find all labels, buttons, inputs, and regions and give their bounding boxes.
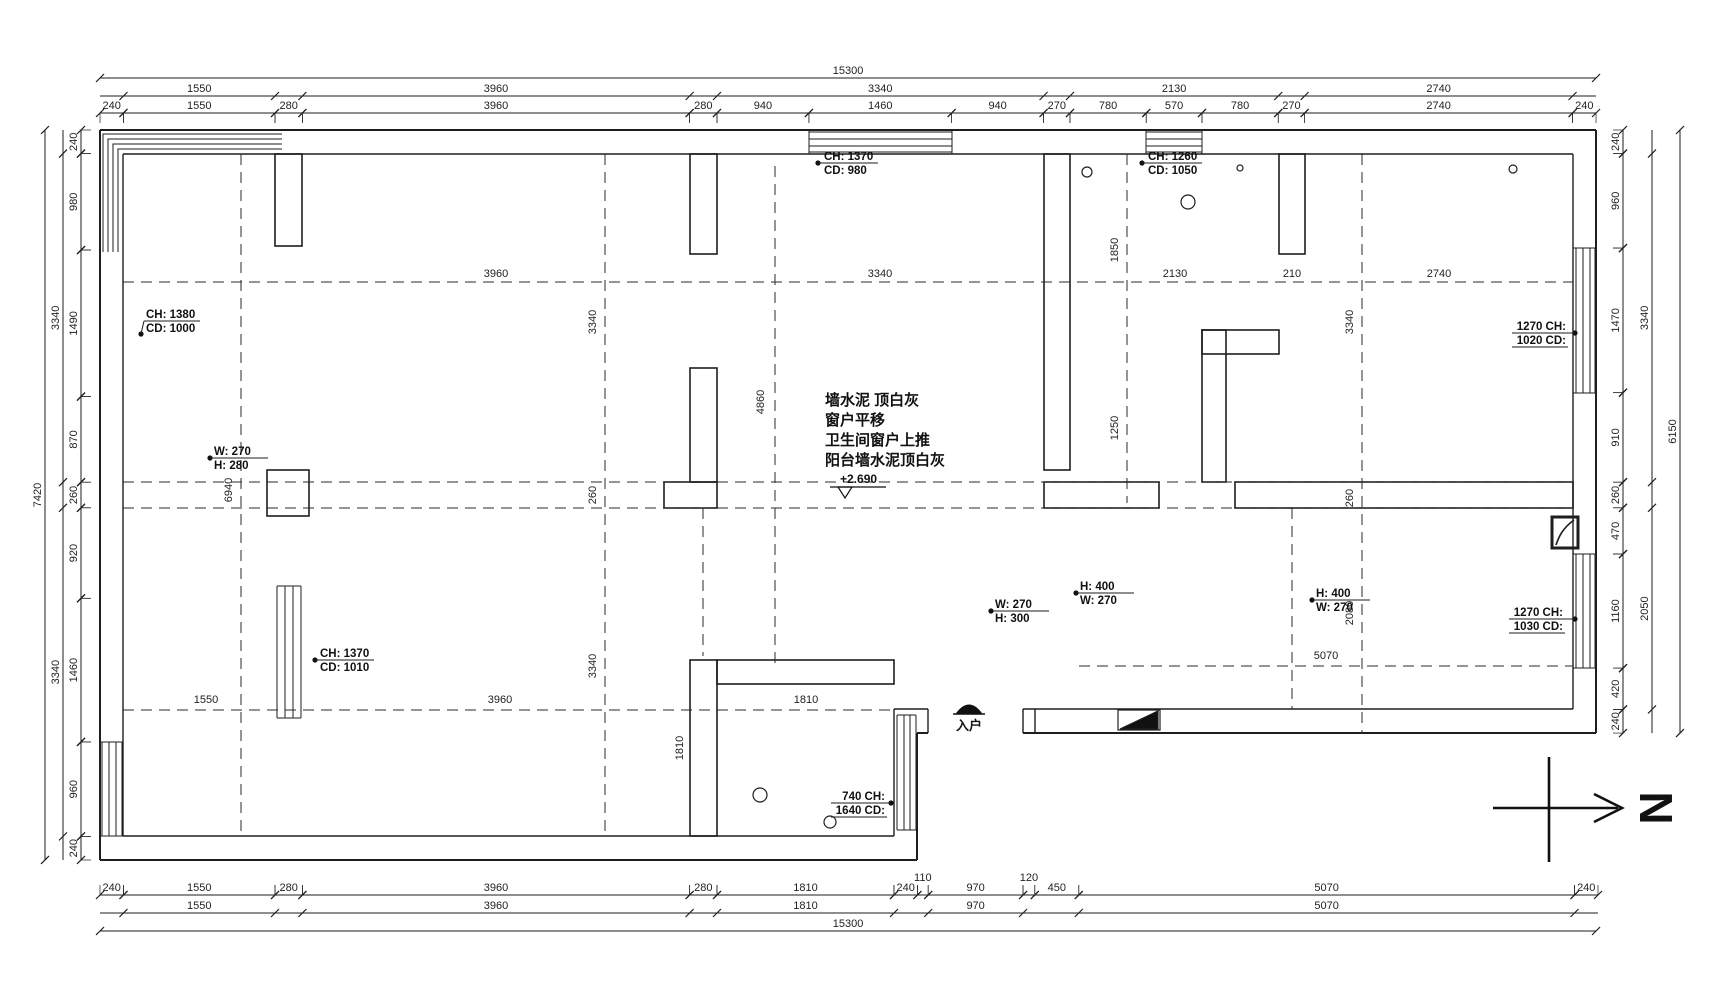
note-line: 卫生间窗户上推: [825, 431, 930, 449]
svg-text:3340: 3340: [50, 660, 62, 684]
interior-dim: 2130: [1163, 268, 1187, 280]
svg-text:7420: 7420: [32, 483, 44, 507]
interior-dimensions: 3960334021302102740507015503960181069403…: [194, 238, 1451, 760]
interior-dim: 3960: [488, 694, 512, 706]
opening-label: 1270 CH:1020 CD:: [1512, 321, 1578, 347]
svg-text:970: 970: [966, 882, 984, 894]
svg-text:15300: 15300: [833, 918, 864, 930]
svg-text:1160: 1160: [1610, 599, 1622, 623]
svg-text:1270 CH:: 1270 CH:: [1514, 607, 1563, 619]
interior-dim: 1550: [194, 694, 218, 706]
interior-dim: 3340: [1344, 310, 1356, 334]
interior-dim: 1250: [1109, 416, 1121, 440]
svg-text:1020 CD:: 1020 CD:: [1517, 335, 1566, 347]
svg-text:980: 980: [68, 193, 80, 211]
svg-text:240: 240: [1610, 133, 1622, 151]
svg-text:240: 240: [1575, 100, 1593, 112]
svg-text:260: 260: [68, 486, 80, 504]
svg-text:W: 270: W: 270: [214, 446, 251, 458]
interior-dim: 2740: [1427, 268, 1451, 280]
svg-text:1490: 1490: [68, 311, 80, 335]
opening-label: 740 CH:1640 CD:: [831, 791, 894, 817]
svg-text:W: 270: W: 270: [1316, 602, 1353, 614]
svg-text:1810: 1810: [793, 882, 817, 894]
svg-text:3340: 3340: [868, 83, 892, 95]
svg-text:CH: 1260: CH: 1260: [1148, 151, 1197, 163]
svg-text:2740: 2740: [1426, 83, 1450, 95]
interior-dim: 3340: [587, 310, 599, 334]
svg-text:1470: 1470: [1610, 308, 1622, 332]
opening-label: W: 270H: 280: [207, 446, 268, 472]
interior-dim: 5070: [1314, 650, 1338, 662]
svg-text:470: 470: [1610, 522, 1622, 540]
dim-left-overall: 7420: [32, 126, 49, 864]
level-triangle-icon: [838, 487, 852, 498]
svg-text:280: 280: [280, 882, 298, 894]
window-left-icon: [100, 742, 123, 836]
svg-text:5070: 5070: [1314, 882, 1338, 894]
note-line: 墙水泥 顶白灰: [825, 391, 919, 409]
svg-text:CD: 1010: CD: 1010: [320, 662, 369, 674]
dim-right-detail: 24096014709102604701160420240: [1610, 126, 1627, 737]
svg-text:3960: 3960: [484, 83, 508, 95]
opening-label: 1270 CH:1030 CD:: [1509, 607, 1578, 633]
svg-text:3960: 3960: [484, 100, 508, 112]
pipe-circle-icon: [1509, 165, 1517, 173]
svg-text:280: 280: [694, 882, 712, 894]
interior-dim: 3340: [868, 268, 892, 280]
interior-dim: 6940: [223, 478, 235, 502]
svg-text:1030 CD:: 1030 CD:: [1514, 621, 1563, 633]
svg-text:240: 240: [1610, 712, 1622, 730]
svg-text:6150: 6150: [1667, 419, 1679, 443]
window-bath-icon: [897, 715, 916, 830]
svg-text:960: 960: [1610, 192, 1622, 210]
svg-text:CH: 1370: CH: 1370: [320, 648, 369, 660]
interior-dim: 3960: [484, 268, 508, 280]
svg-text:1640 CD:: 1640 CD:: [836, 805, 885, 817]
dim-top-overall: 15300: [96, 65, 1600, 82]
svg-text:W: 270: W: 270: [995, 599, 1032, 611]
pipe-circle-icon: [1082, 167, 1092, 177]
opening-label: H: 400W: 270: [1309, 588, 1370, 614]
svg-text:3960: 3960: [484, 900, 508, 912]
opening-label: CH: 1370CD: 980: [815, 151, 878, 177]
svg-text:3340: 3340: [50, 306, 62, 330]
svg-text:CH: 1370: CH: 1370: [824, 151, 873, 163]
svg-text:280: 280: [694, 100, 712, 112]
dim-left-major: 33403340: [50, 130, 67, 860]
floor-plan-canvas: 入户 N 墙水泥 顶白灰窗户平移卫生间窗户上推阳台墙水泥顶白灰 +2.690 1…: [0, 0, 1711, 1000]
svg-text:910: 910: [1610, 428, 1622, 446]
interior-dim: 4860: [755, 390, 767, 414]
dim-right-overall: 6150: [1667, 126, 1684, 737]
opening-label: CH: 1380CD: 1000: [138, 309, 200, 337]
svg-text:1810: 1810: [793, 900, 817, 912]
interior-dim: 260: [587, 486, 599, 504]
svg-text:CD: 980: CD: 980: [824, 165, 867, 177]
pipe-circle-icon: [1181, 195, 1195, 209]
svg-text:3340: 3340: [1639, 306, 1651, 330]
svg-text:940: 940: [754, 100, 772, 112]
svg-text:240: 240: [68, 839, 80, 857]
interior-dim: 1810: [794, 694, 818, 706]
svg-text:110: 110: [914, 872, 932, 884]
svg-text:120: 120: [1020, 872, 1038, 884]
svg-text:H: 280: H: 280: [214, 460, 249, 472]
note-line: 阳台墙水泥顶白灰: [825, 451, 945, 469]
window-interior-icon: [277, 586, 301, 718]
svg-text:2050: 2050: [1639, 596, 1651, 620]
dim-right-major: 33402050: [1639, 130, 1656, 733]
svg-text:240: 240: [103, 882, 121, 894]
svg-text:240: 240: [897, 882, 915, 894]
dim-top-detail: 2401550280396028094014609402707805707802…: [96, 100, 1600, 123]
bay-window-corner-icon: [103, 134, 282, 252]
opening-label: CH: 1370CD: 1010: [312, 648, 374, 674]
interior-dim: 260: [1344, 489, 1356, 507]
svg-text:780: 780: [1231, 100, 1249, 112]
svg-text:1270 CH:: 1270 CH:: [1517, 321, 1566, 333]
svg-text:740 CH:: 740 CH:: [842, 791, 885, 803]
opening-label: CH: 1260CD: 1050: [1139, 151, 1202, 177]
svg-text:15300: 15300: [833, 65, 864, 77]
entry-label: 入户: [956, 718, 982, 733]
interior-dim: 210: [1283, 268, 1301, 280]
entry-mark: 入户: [953, 705, 985, 733]
svg-text:2740: 2740: [1426, 100, 1450, 112]
svg-text:H: 300: H: 300: [995, 613, 1030, 625]
dim-bottom-overall: 15300: [96, 918, 1600, 935]
svg-text:960: 960: [68, 780, 80, 798]
svg-text:CH: 1380: CH: 1380: [146, 309, 195, 321]
svg-text:920: 920: [68, 544, 80, 562]
svg-text:H: 400: H: 400: [1316, 588, 1351, 600]
entry-arrow-icon: [956, 705, 982, 714]
interior-dim: 1810: [674, 736, 686, 760]
svg-text:780: 780: [1099, 100, 1117, 112]
dim-left-detail: 24098014908702609201460960240: [68, 126, 91, 864]
svg-text:H: 400: H: 400: [1080, 581, 1115, 593]
svg-text:240: 240: [103, 100, 121, 112]
dim-bottom-detail: 2401550280396028018102401109701204505070…: [96, 872, 1602, 899]
svg-text:1550: 1550: [187, 100, 211, 112]
pipe-circle-icon: [1237, 165, 1243, 171]
svg-text:5070: 5070: [1314, 900, 1338, 912]
svg-text:450: 450: [1048, 882, 1066, 894]
svg-text:CD: 1000: CD: 1000: [146, 323, 195, 335]
north-letter: N: [1630, 791, 1682, 824]
svg-text:270: 270: [1282, 100, 1300, 112]
svg-text:970: 970: [966, 900, 984, 912]
svg-text:1460: 1460: [868, 100, 892, 112]
svg-text:1550: 1550: [187, 882, 211, 894]
svg-text:CD: 1050: CD: 1050: [1148, 165, 1197, 177]
level-mark: +2.690: [830, 472, 886, 498]
svg-text:260: 260: [1610, 486, 1622, 504]
note-line: 窗户平移: [825, 411, 885, 429]
north-arrow: N: [1493, 757, 1682, 862]
svg-text:3960: 3960: [484, 882, 508, 894]
drain-circle-icon: [824, 816, 836, 828]
svg-text:1550: 1550: [187, 83, 211, 95]
flue-box-icon: [1552, 517, 1578, 548]
opening-label: H: 400W: 270: [1073, 581, 1134, 607]
svg-text:270: 270: [1048, 100, 1066, 112]
toilet-circle-icon: [753, 788, 767, 802]
exterior-walls: [100, 130, 1596, 860]
opening-label: W: 270H: 300: [988, 599, 1049, 625]
column-block: [267, 470, 309, 516]
basin-icon: [1120, 711, 1158, 729]
svg-text:240: 240: [1577, 882, 1595, 894]
svg-text:420: 420: [1610, 680, 1622, 698]
svg-text:W: 270: W: 270: [1080, 595, 1117, 607]
dim-top-major: 15503960334021302740: [100, 83, 1596, 100]
svg-text:280: 280: [280, 100, 298, 112]
dim-bottom-major: 1550396018109705070: [100, 900, 1598, 917]
interior-dim: 1850: [1109, 238, 1121, 262]
interior-dim: 3340: [587, 654, 599, 678]
window-right-lower-icon: [1573, 554, 1596, 668]
renovation-notes: 墙水泥 顶白灰窗户平移卫生间窗户上推阳台墙水泥顶白灰: [825, 391, 945, 469]
svg-text:240: 240: [68, 133, 80, 151]
svg-text:1550: 1550: [187, 900, 211, 912]
fixtures: [753, 165, 1578, 828]
svg-text:870: 870: [68, 430, 80, 448]
svg-text:1460: 1460: [68, 658, 80, 682]
svg-text:570: 570: [1165, 100, 1183, 112]
window-right-upper-icon: [1573, 248, 1596, 393]
svg-text:2130: 2130: [1162, 83, 1186, 95]
svg-text:940: 940: [988, 100, 1006, 112]
level-value: +2.690: [840, 472, 877, 486]
